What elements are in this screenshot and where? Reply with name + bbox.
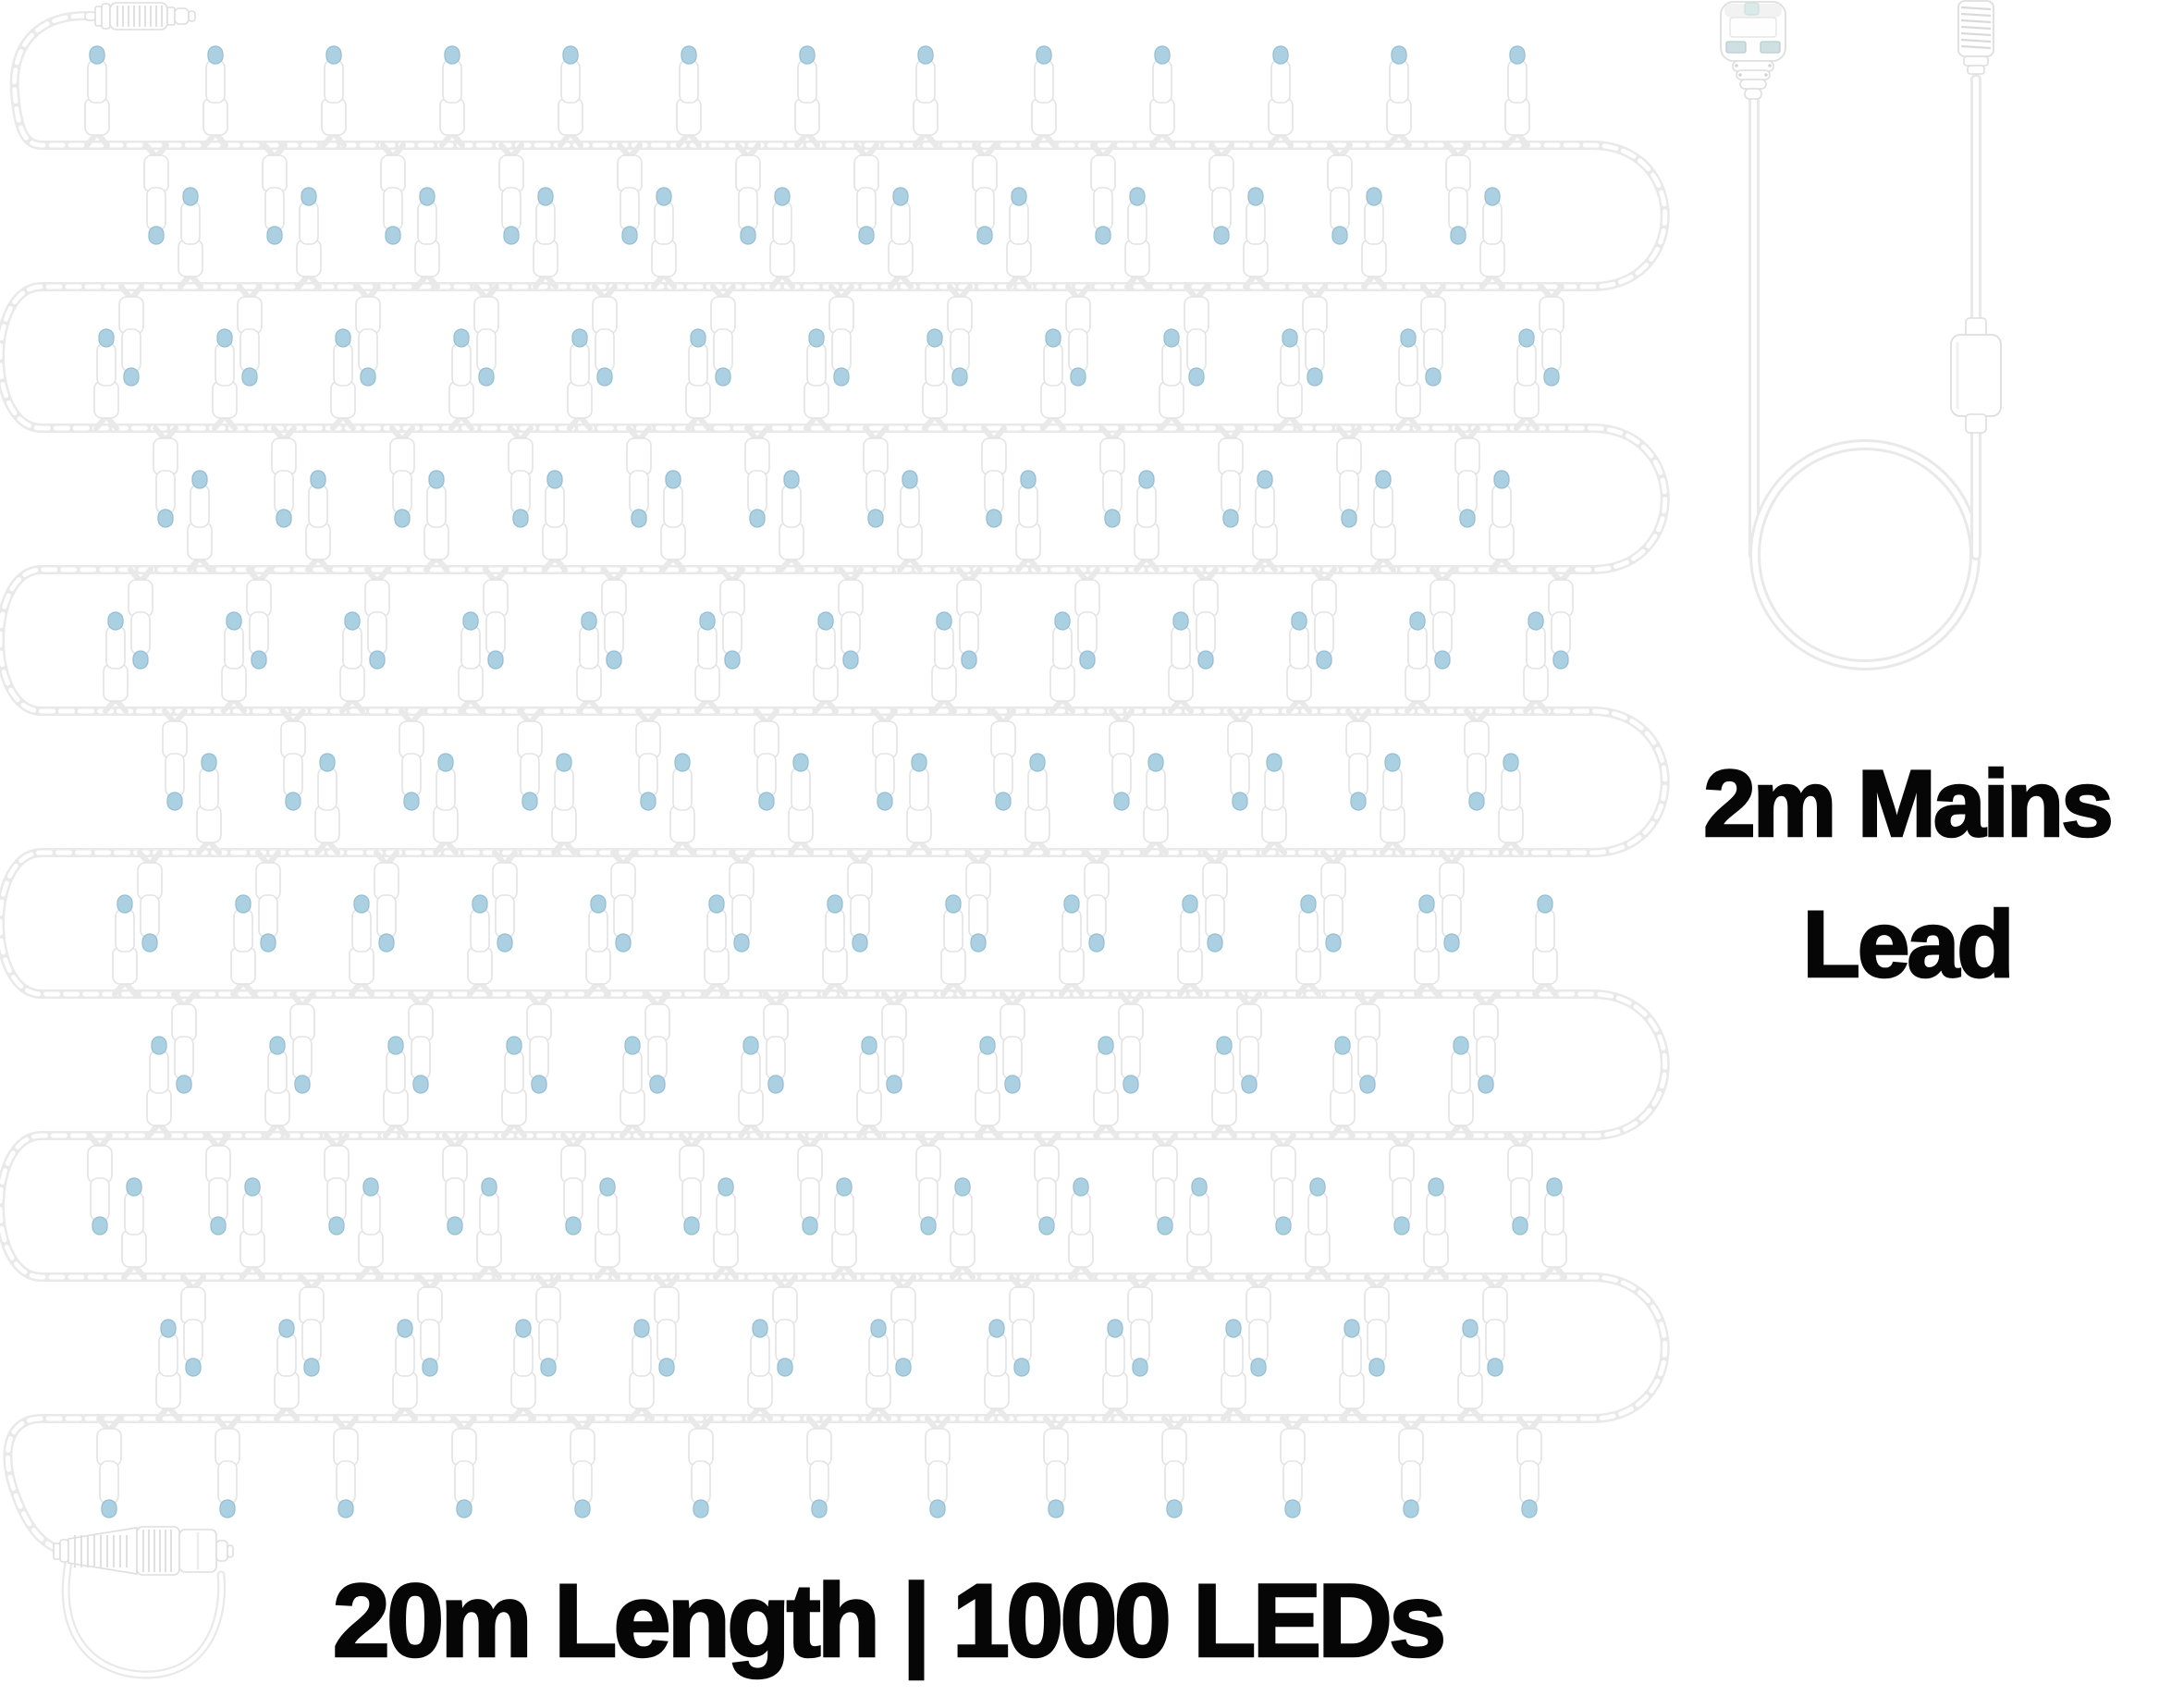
- led-bulb-down: [1237, 994, 1261, 1093]
- led-bulb-down: [281, 711, 305, 810]
- led-bulb-up: [1449, 1037, 1473, 1136]
- led-bulb-down: [1219, 428, 1243, 527]
- led-bulb-up: [985, 1320, 1009, 1419]
- led-bulb-down: [1010, 1277, 1034, 1376]
- led-bulb-down: [882, 994, 906, 1093]
- led-bulb-up: [1178, 895, 1202, 994]
- led-bulb-up: [932, 612, 956, 711]
- led-bulb-down: [1119, 994, 1143, 1093]
- led-bulb-up: [203, 46, 227, 145]
- led-bulb-down: [798, 1136, 822, 1235]
- led-bulb-up: [595, 1178, 620, 1277]
- led-bulb-up: [714, 1178, 738, 1277]
- led-bulb-up: [1424, 1178, 1448, 1277]
- led-bulb-up: [823, 895, 847, 994]
- led-bulb-down: [1035, 1136, 1059, 1235]
- led-bulb-up: [630, 1320, 654, 1419]
- led-bulb-down: [1271, 1136, 1295, 1235]
- led-bulb-down: [848, 853, 872, 952]
- led-bulb-down: [1399, 1419, 1423, 1518]
- led-bulb-up: [1007, 188, 1031, 287]
- led-bulb-down: [957, 570, 981, 669]
- led-bulb-up: [795, 46, 819, 145]
- led-bulb-down: [129, 570, 153, 669]
- led-bulb-up: [804, 329, 828, 428]
- led-bulb-down: [1203, 853, 1227, 952]
- led-bulb-up: [951, 1178, 975, 1277]
- led-bulb-up: [661, 471, 685, 570]
- led-bulb-down: [1312, 570, 1336, 669]
- led-bulb-up: [748, 1320, 772, 1419]
- led-bulb-down: [263, 145, 287, 244]
- led-bulb-down: [238, 287, 262, 386]
- led-bulb-down: [119, 287, 143, 386]
- led-bulb-up: [670, 754, 694, 853]
- led-bulb-down: [655, 1277, 679, 1376]
- led-bulb-down: [272, 428, 296, 527]
- led-bulb-down: [645, 994, 669, 1093]
- led-bulb-up: [1480, 188, 1504, 287]
- led-bulb-down: [711, 287, 735, 386]
- led-bulb-down: [839, 570, 863, 669]
- led-bulb-down: [982, 428, 1006, 527]
- led-bulb-down: [627, 428, 651, 527]
- led-bulb-down: [215, 1419, 239, 1518]
- led-bulb-up: [1069, 1178, 1093, 1277]
- led-bulb-down: [571, 1419, 595, 1518]
- led-bulb-up: [197, 754, 221, 853]
- led-bulb-down: [991, 711, 1015, 810]
- led-bulb-up: [1542, 1178, 1566, 1277]
- led-bulb-down: [1346, 711, 1370, 810]
- led-bulb-up: [789, 754, 813, 853]
- led-bulb-down: [689, 1419, 713, 1518]
- led-bulb-up: [104, 612, 128, 711]
- led-bulb-up: [1212, 1037, 1236, 1136]
- led-bulb-down: [484, 570, 508, 669]
- led-bulb-up: [1490, 471, 1514, 570]
- led-bulb-up: [1331, 1037, 1355, 1136]
- led-bulb-down: [966, 853, 990, 952]
- led-bulb-up: [1135, 471, 1159, 570]
- led-bulb-down: [206, 1136, 230, 1235]
- led-bulb-down: [97, 1419, 121, 1518]
- mains-lead-label-line2: Lead: [1637, 874, 2178, 1014]
- led-bulb-down: [399, 711, 423, 810]
- led-bulb-up: [1262, 754, 1286, 853]
- led-bulb-down: [418, 1277, 442, 1376]
- led-bulb-down: [1075, 570, 1099, 669]
- led-bulb-down: [1549, 570, 1573, 669]
- led-bulb-up: [306, 471, 330, 570]
- led-bulb-down: [1228, 711, 1252, 810]
- led-bulb-up: [1050, 612, 1074, 711]
- mains-lead-cable: [1754, 80, 1976, 665]
- led-bulb-up: [415, 188, 439, 287]
- led-bulb-down: [334, 1419, 358, 1518]
- led-bulb-up: [222, 612, 246, 711]
- transformer-box: [1951, 318, 2001, 433]
- led-bulb-up: [511, 1320, 535, 1419]
- led-bulb-up: [468, 895, 492, 994]
- led-bulb-down: [374, 853, 399, 952]
- led-bulb-down: [527, 994, 551, 1093]
- led-bulb-up: [1253, 471, 1277, 570]
- led-bulb-down: [493, 853, 517, 952]
- led-bulb-down: [773, 1277, 797, 1376]
- led-bulb-up: [779, 471, 804, 570]
- led-bulb-up: [814, 612, 838, 711]
- led-bulb-up: [1515, 329, 1539, 428]
- led-bulb-up: [1244, 188, 1268, 287]
- led-bulb-down: [1517, 1419, 1541, 1518]
- led-bulb-up: [434, 754, 458, 853]
- led-bulb-down: [864, 428, 888, 527]
- led-bulb-up: [1269, 46, 1293, 145]
- mains-lead-label: 2m Mains Lead: [1637, 733, 2178, 1014]
- led-bulb-down: [1246, 1277, 1270, 1376]
- led-bulb-down: [1508, 1136, 1532, 1235]
- string-start-connector: [85, 3, 195, 30]
- led-bulb-up: [941, 895, 965, 994]
- led-bulb-down: [1085, 853, 1109, 952]
- led-bulb-up: [1025, 754, 1049, 853]
- led-bulb-down: [561, 1136, 585, 1235]
- led-bulb-up: [359, 1178, 383, 1277]
- led-bulb-up: [1387, 46, 1411, 145]
- led-bulb-up: [322, 46, 346, 145]
- led-bulb-up: [85, 46, 109, 145]
- led-bulb-down: [1184, 287, 1209, 386]
- led-bulb-down: [518, 711, 542, 810]
- led-bulb-up: [384, 1037, 408, 1136]
- led-bulb-up: [275, 1320, 299, 1419]
- led-bulb-up: [315, 754, 339, 853]
- led-bulb-down: [1209, 145, 1233, 244]
- led-bulb-down: [1091, 145, 1115, 244]
- led-bulb-up: [577, 612, 601, 711]
- led-bulb-down: [452, 1419, 476, 1518]
- led-bulb-down: [973, 145, 997, 244]
- led-bulb-up: [770, 188, 794, 287]
- led-bulb-down: [636, 711, 660, 810]
- uk-plug: [1721, 2, 1785, 99]
- led-bulb-up: [350, 895, 374, 994]
- led-bulb-down: [1066, 287, 1090, 386]
- led-bulb-down: [138, 853, 162, 952]
- led-bulb-down: [720, 570, 744, 669]
- led-bulb-up: [695, 612, 719, 711]
- led-bulb-down: [1110, 711, 1134, 810]
- led-bulb-down: [1465, 711, 1489, 810]
- led-bulb-down: [381, 145, 405, 244]
- led-bulb-up: [1032, 46, 1056, 145]
- led-bulb-down: [1100, 428, 1124, 527]
- led-bulb-up: [393, 1320, 417, 1419]
- led-bulb-down: [256, 853, 280, 952]
- led-bulb-down: [474, 287, 498, 386]
- led-bulb-down: [443, 1136, 467, 1235]
- led-bulb-up: [156, 1320, 180, 1419]
- led-bulb-up: [1405, 612, 1429, 711]
- led-bulb-down: [390, 428, 414, 527]
- led-bulb-up: [620, 1037, 644, 1136]
- led-bulb-up: [1380, 754, 1405, 853]
- length-leds-label: 20m Length | 1000 LEDs: [222, 1566, 1553, 1677]
- led-bulb-up: [975, 1037, 1000, 1136]
- led-bulb-down: [829, 287, 853, 386]
- led-bulb-up: [1306, 1178, 1330, 1277]
- led-bulb-down: [891, 1277, 915, 1376]
- led-bulb-up: [340, 612, 364, 711]
- led-bulb-down: [1365, 1277, 1389, 1376]
- led-bulb-up: [857, 1037, 881, 1136]
- led-bulb-down: [1281, 1419, 1305, 1518]
- led-bulb-down: [948, 287, 972, 386]
- led-bulb-up: [923, 329, 947, 428]
- led-bulb-down: [1421, 287, 1445, 386]
- led-bulb-down: [172, 994, 196, 1093]
- led-bulb-up: [1278, 329, 1302, 428]
- led-bulb-down: [854, 145, 878, 244]
- led-bulb-down: [409, 994, 433, 1093]
- led-bulb-down: [1356, 994, 1380, 1093]
- led-bulb-down: [300, 1277, 324, 1376]
- led-bulb-up: [502, 1037, 526, 1136]
- led-bulb-up: [543, 471, 567, 570]
- led-bulb-down: [755, 711, 779, 810]
- led-bulb-up: [297, 188, 321, 287]
- led-bulb-down: [807, 1419, 831, 1518]
- led-bulb-down: [873, 711, 897, 810]
- led-bulb-up: [889, 188, 913, 287]
- led-bulb-up: [686, 329, 710, 428]
- led-bulb-down: [163, 711, 187, 810]
- led-bulb-up: [1060, 895, 1084, 994]
- led-bulb-up: [652, 188, 676, 287]
- led-bulb-up: [1103, 1320, 1127, 1419]
- string-end-connector: [54, 1527, 233, 1575]
- led-bulb-down: [181, 1277, 205, 1376]
- led-bulb-up: [1458, 1320, 1482, 1419]
- led-bulb-down: [1128, 1277, 1152, 1376]
- led-bulbs: [85, 46, 1573, 1518]
- led-bulb-down: [88, 1136, 112, 1235]
- led-bulb-down: [730, 853, 754, 952]
- led-bulb-up: [94, 329, 118, 428]
- led-bulb-down: [247, 570, 271, 669]
- led-bulb-up: [1287, 612, 1311, 711]
- led-bulb-up: [1221, 1320, 1245, 1419]
- mains-lead-connector: [1958, 1, 1994, 74]
- led-bulb-down: [916, 1136, 940, 1235]
- led-bulb-down: [144, 145, 168, 244]
- led-bulb-down: [611, 853, 635, 952]
- led-bulb-up: [188, 471, 212, 570]
- led-bulb-down: [1044, 1419, 1068, 1518]
- led-bulb-up: [677, 46, 701, 145]
- product-image: 2m Mains Lead 20m Length | 1000 LEDs: [0, 0, 2184, 1696]
- led-bulb-up: [1371, 471, 1395, 570]
- led-bulb-up: [440, 46, 464, 145]
- led-bulb-up: [1016, 471, 1040, 570]
- led-bulb-down: [1303, 287, 1327, 386]
- led-bulb-down: [1153, 1136, 1177, 1235]
- led-bulb-down: [1455, 428, 1479, 527]
- string-wire: [0, 16, 1665, 1550]
- led-bulb-down: [1483, 1277, 1507, 1376]
- led-bulb-up: [1094, 1037, 1118, 1136]
- led-bulb-up: [1505, 46, 1529, 145]
- led-bulb-up: [1144, 754, 1168, 853]
- led-bulb-down: [1474, 994, 1498, 1093]
- led-bulb-up: [1159, 329, 1184, 428]
- led-bulb-up: [568, 329, 592, 428]
- led-bulb-up: [1524, 612, 1548, 711]
- led-bulb-up: [240, 1178, 264, 1277]
- led-bulb-down: [356, 287, 380, 386]
- end-connector-cable-loop: [66, 1563, 221, 1675]
- led-bulb-up: [1533, 895, 1557, 994]
- led-bulb-down: [536, 1277, 560, 1376]
- led-bulb-up: [459, 612, 483, 711]
- led-bulb-down: [325, 1136, 349, 1235]
- led-bulb-up: [534, 188, 558, 287]
- led-bulb-down: [1194, 570, 1218, 669]
- led-bulb-up: [705, 895, 729, 994]
- led-bulb-up: [914, 46, 938, 145]
- led-bulb-down: [1540, 287, 1564, 386]
- led-bulb-up: [113, 895, 137, 994]
- led-bulb-up: [477, 1178, 501, 1277]
- led-bulb-down: [1337, 428, 1361, 527]
- led-bulb-up: [122, 1178, 146, 1277]
- led-bulb-up: [178, 188, 202, 287]
- led-bulb-down: [1328, 145, 1352, 244]
- led-bulb-up: [213, 329, 237, 428]
- led-bulb-up: [739, 1037, 763, 1136]
- led-bulb-up: [331, 329, 355, 428]
- led-bulb-down: [499, 145, 523, 244]
- led-bulb-down: [764, 994, 788, 1093]
- led-bulb-up: [1150, 46, 1174, 145]
- led-bulb-up: [1362, 188, 1386, 287]
- led-bulb-down: [618, 145, 642, 244]
- led-bulb-down: [153, 428, 178, 527]
- mains-lead-label-line1: 2m Mains: [1637, 733, 2178, 874]
- led-bulb-up: [1169, 612, 1193, 711]
- led-bulb-up: [424, 471, 448, 570]
- led-bulb-down: [1390, 1136, 1414, 1235]
- led-bulb-up: [907, 754, 931, 853]
- led-bulb-down: [593, 287, 617, 386]
- led-bulb-down: [745, 428, 769, 527]
- led-bulb-down: [290, 994, 314, 1093]
- led-bulb-up: [832, 1178, 856, 1277]
- led-bulb-up: [1499, 754, 1523, 853]
- led-bulb-up: [898, 471, 922, 570]
- led-bulb-up: [147, 1037, 171, 1136]
- led-bulb-up: [265, 1037, 289, 1136]
- led-bulb-down: [365, 570, 389, 669]
- led-bulb-up: [866, 1320, 890, 1419]
- led-bulb-down: [1162, 1419, 1186, 1518]
- led-bulb-up: [1296, 895, 1320, 994]
- led-bulb-down: [680, 1136, 704, 1235]
- led-bulb-up: [231, 895, 255, 994]
- led-bulb-down: [602, 570, 626, 669]
- led-bulb-down: [736, 145, 760, 244]
- led-bulb-up: [1041, 329, 1065, 428]
- led-bulb-down: [1446, 145, 1470, 244]
- led-bulb-down: [1321, 853, 1345, 952]
- led-bulb-up: [1187, 1178, 1211, 1277]
- led-bulb-down: [1440, 853, 1464, 952]
- led-bulb-up: [449, 329, 473, 428]
- led-bulb-up: [1396, 329, 1420, 428]
- led-bulb-up: [1415, 895, 1439, 994]
- led-bulb-up: [1340, 1320, 1364, 1419]
- led-bulb-down: [1430, 570, 1454, 669]
- led-bulb-up: [1125, 188, 1149, 287]
- led-bulb-down: [1000, 994, 1025, 1093]
- led-bulb-up: [552, 754, 576, 853]
- led-bulb-down: [509, 428, 533, 527]
- led-bulb-up: [586, 895, 610, 994]
- led-bulb-up: [558, 46, 583, 145]
- led-bulb-down: [926, 1419, 950, 1518]
